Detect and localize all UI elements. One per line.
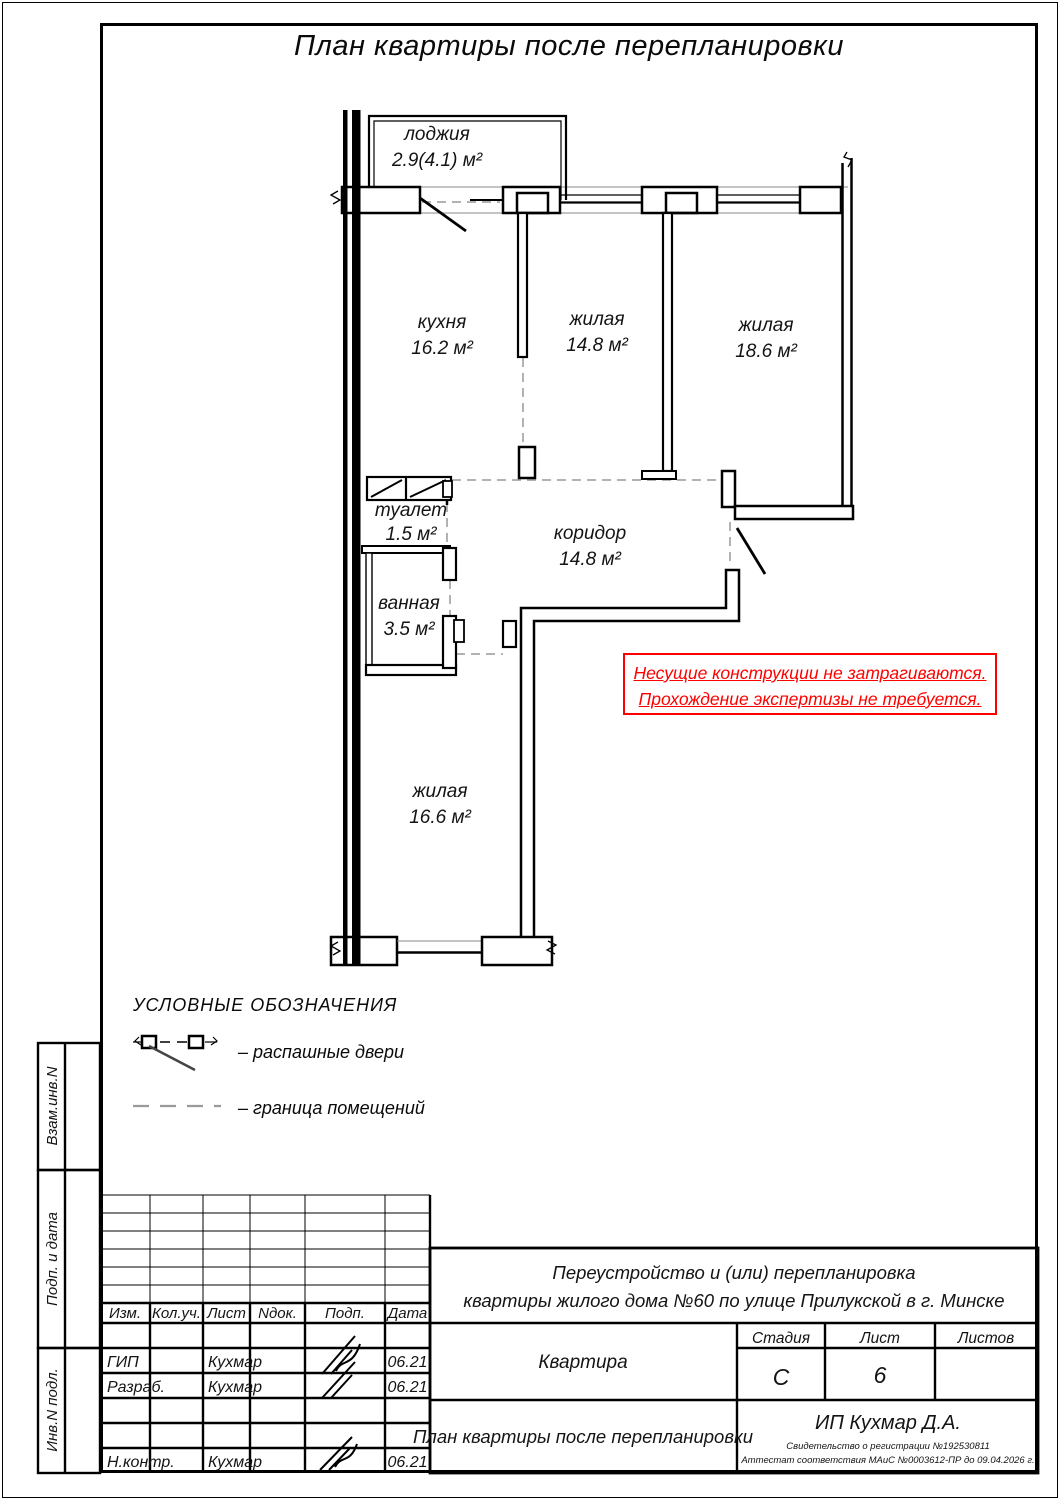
toilet-bath-wall — [362, 546, 450, 553]
name-cell: Кухмар — [208, 1354, 262, 1371]
revision-table-headers: Изм. Кол.уч. Лист Nдок. Подп. Дата — [109, 1305, 427, 1322]
room-boundary-dashes — [422, 202, 730, 654]
vent-shaft — [367, 477, 452, 500]
room-area: 18.6 м² — [735, 341, 797, 362]
doc-title: План квартиры после перепланировки — [413, 1426, 753, 1447]
bath-left-wall — [366, 553, 372, 669]
note-line-2: Прохождение экспертизы не требуется. — [625, 686, 995, 712]
project-line-1: Переустройство и (или) перепланировка — [552, 1262, 915, 1283]
signature — [322, 1336, 360, 1374]
signatures — [320, 1336, 360, 1470]
title-block: Взам.инв.N Подп. и дата Инв.N подл. — [30, 1038, 1042, 1482]
corridor-bottom-wall — [521, 570, 739, 938]
balcony-door-swing — [420, 198, 466, 231]
room-label: коридор — [554, 523, 626, 544]
room-area: 14.8 м² — [559, 549, 621, 570]
col-header: Лист — [206, 1305, 246, 1322]
sidebar-label: Взам.инв.N — [44, 1066, 61, 1145]
room-label: жилая — [411, 781, 467, 802]
room-label: кухня — [418, 312, 467, 333]
revision-table-rows: ГИП Кухмар 06.21 Разраб. Кухмар 06.21 Н.… — [107, 1354, 428, 1471]
revision-table-lines — [100, 1195, 430, 1473]
page-title: План квартиры после перепланировки — [100, 30, 1038, 63]
name-cell: Кухмар — [208, 1379, 262, 1396]
entrance-door-swing — [737, 528, 765, 574]
sidebar-label: Инв.N подл. — [44, 1368, 61, 1452]
wall-pier — [800, 187, 841, 213]
sidebar-label: Подп. и дата — [44, 1212, 61, 1306]
partition-living-living — [663, 213, 672, 471]
col-header: Подп. — [325, 1305, 365, 1322]
bath-right-wall-upper — [443, 548, 456, 580]
signature — [320, 1437, 357, 1470]
door-jamb — [722, 471, 735, 507]
room-right-bottom-wall — [735, 506, 853, 519]
col-header: Nдок. — [258, 1305, 297, 1322]
stage-value: С — [773, 1364, 790, 1390]
partition-pier — [519, 447, 535, 478]
room-label: лоджия — [403, 124, 470, 145]
legend-heading: УСЛОВНЫЕ ОБОЗНАЧЕНИЯ — [133, 995, 553, 1016]
object-name: Квартира — [538, 1352, 627, 1373]
window-glazing — [560, 195, 642, 203]
room-area: 16.2 м² — [411, 338, 473, 359]
sheet-label: Лист — [859, 1330, 900, 1347]
window-glazing — [397, 941, 482, 953]
col-header: Дата — [386, 1305, 428, 1322]
room-label: туалет — [375, 500, 447, 521]
window-block — [503, 187, 560, 213]
role-cell: Н.контр. — [107, 1454, 175, 1471]
party-wall — [343, 110, 361, 965]
name-cell: Кухмар — [208, 1454, 262, 1471]
titleblock-texts: Переустройство и (или) перепланировка кв… — [413, 1262, 1035, 1466]
company-name: ИП Кухмар Д.А. — [815, 1412, 961, 1434]
room-label: жилая — [568, 309, 624, 330]
engineering-note: Несущие конструкции не затрагиваются. Пр… — [623, 653, 997, 715]
door-jamb — [454, 620, 464, 642]
right-wall — [843, 158, 852, 519]
floor-plan: лоджия 2.9(4.1) м² кухня 16.2 м² жилая 1… — [320, 95, 870, 990]
company-cert-2: Аттестат соответствия МАиС №0003612-ПР д… — [740, 1455, 1034, 1466]
window-glazing — [717, 195, 800, 203]
col-header: Кол.уч. — [152, 1305, 201, 1322]
role-cell: Разраб. — [107, 1379, 165, 1396]
date-cell: 06.21 — [387, 1354, 427, 1371]
room-area: 1.5 м² — [385, 524, 437, 545]
room-area: 16.6 м² — [409, 807, 471, 828]
partition-foot — [642, 471, 676, 479]
room-label: ванная — [378, 593, 440, 614]
company-cert-1: Свидетельство о регистрации №192530811 — [786, 1441, 989, 1452]
role-cell: ГИП — [107, 1354, 139, 1371]
stage-label: Стадия — [752, 1330, 810, 1347]
wall-pier — [482, 937, 552, 965]
partition-kitchen-living — [518, 213, 527, 357]
door-jamb — [503, 621, 516, 647]
window-block — [642, 187, 717, 213]
room-label: жилая — [737, 315, 793, 336]
col-header: Изм. — [109, 1305, 141, 1322]
room-area: 2.9(4.1) м² — [391, 150, 483, 171]
note-line-1: Несущие конструкции не затрагиваются. — [625, 660, 995, 686]
date-cell: 06.21 — [387, 1454, 427, 1471]
project-line-2: квартиры жилого дома №60 по улице Прилук… — [463, 1290, 1004, 1311]
sheets-label: Листов — [957, 1330, 1014, 1347]
sidebar-labels: Взам.инв.N Подп. и дата Инв.N подл. — [44, 1066, 61, 1451]
sheet-value: 6 — [874, 1362, 887, 1388]
room-area: 3.5 м² — [383, 619, 435, 640]
room-area: 14.8 м² — [566, 335, 628, 356]
date-cell: 06.21 — [387, 1379, 427, 1396]
